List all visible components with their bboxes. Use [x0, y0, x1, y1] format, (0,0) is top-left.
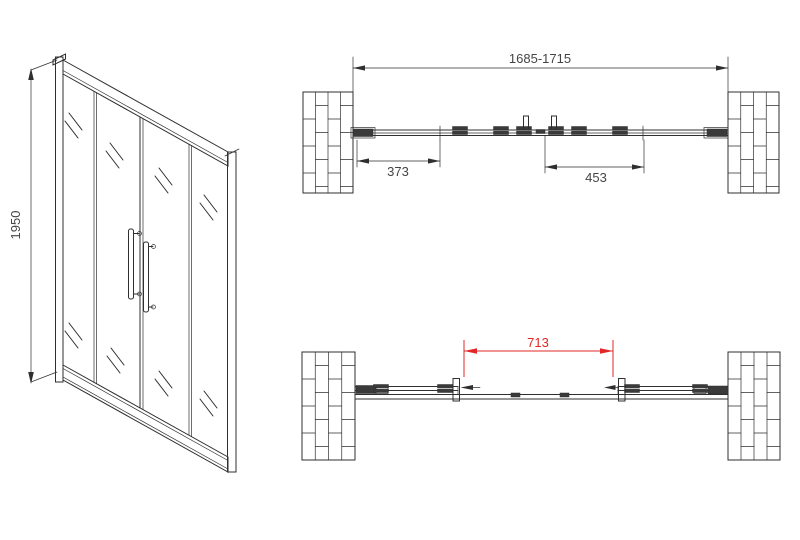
open-rail: [355, 393, 728, 399]
drawing-canvas: 1950: [0, 0, 800, 540]
door-bottom-rail: [63, 365, 228, 472]
right-panel-dimension: 453: [545, 136, 644, 185]
right-door-stack: [604, 379, 728, 402]
right-panel-label: 453: [585, 170, 607, 185]
technical-drawing-page: 1950: [0, 0, 800, 540]
left-door-stack: [355, 379, 480, 402]
left-stack-knob: [453, 379, 460, 402]
door-left-post: [53, 54, 66, 382]
center-overlap-strip: [536, 130, 545, 134]
door-panel-mullions: [94, 91, 192, 436]
wall-right: [728, 92, 779, 193]
clear-opening-label: 713: [527, 335, 549, 350]
roller-brackets-open-left: [374, 385, 453, 393]
closed-rail-assembly: [351, 116, 728, 140]
height-dimension: 1950: [8, 60, 57, 384]
right-stack-knob: [619, 379, 626, 402]
wall-right-open: [728, 352, 780, 460]
clear-opening-dimension: 713: [464, 335, 613, 377]
roller-brackets-open-right: [625, 385, 708, 393]
left-panel-dimension: 373: [357, 140, 440, 179]
door-top-rail: [63, 60, 228, 166]
overall-width-label: 1685-1715: [509, 51, 571, 66]
overall-width-dimension: 1685-1715: [353, 51, 728, 92]
door-handles: [129, 229, 156, 312]
left-panel-label: 373: [387, 164, 409, 179]
door-right-post: [225, 149, 239, 472]
plan-view-closed: 1685-1715 373: [303, 51, 779, 193]
height-dimension-label: 1950: [8, 211, 23, 240]
glass-reflection-marks: [65, 113, 217, 416]
front-elevation-view: 1950: [8, 54, 239, 472]
wall-left: [303, 92, 353, 193]
wall-left-open: [302, 352, 355, 460]
plan-view-open: 713: [302, 335, 780, 460]
